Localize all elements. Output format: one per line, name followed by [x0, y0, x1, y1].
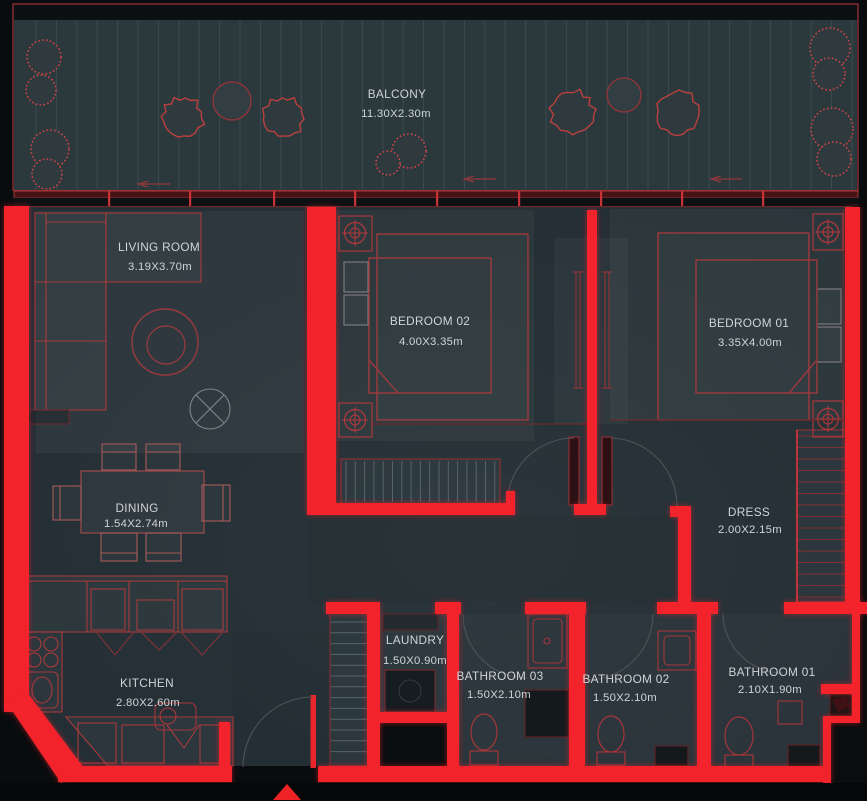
svg-text:3.19X3.70m: 3.19X3.70m — [128, 261, 192, 273]
svg-text:1.50X2.10m: 1.50X2.10m — [593, 692, 657, 704]
svg-text:11.30X2.30m: 11.30X2.30m — [361, 108, 431, 120]
svg-text:1.50X2.10m: 1.50X2.10m — [467, 689, 531, 701]
svg-text:2.80X2.60m: 2.80X2.60m — [116, 697, 180, 709]
svg-text:BEDROOM 02: BEDROOM 02 — [390, 314, 470, 328]
svg-text:DINING: DINING — [115, 501, 158, 515]
svg-text:2.10X1.90m: 2.10X1.90m — [738, 684, 802, 696]
svg-text:KITCHEN: KITCHEN — [120, 676, 174, 690]
svg-text:1.54X2.74m: 1.54X2.74m — [104, 518, 168, 530]
svg-text:1.50X0.90m: 1.50X0.90m — [383, 655, 447, 667]
svg-text:3.35X4.00m: 3.35X4.00m — [718, 337, 782, 349]
svg-text:LIVING ROOM: LIVING ROOM — [118, 240, 200, 254]
svg-text:2.00X2.15m: 2.00X2.15m — [718, 524, 782, 536]
svg-text:BALCONY: BALCONY — [368, 87, 426, 101]
svg-text:DRESS: DRESS — [728, 505, 770, 519]
svg-text:BATHROOM 02: BATHROOM 02 — [583, 672, 670, 686]
svg-text:BATHROOM 03: BATHROOM 03 — [457, 669, 544, 683]
svg-text:BATHROOM 01: BATHROOM 01 — [729, 665, 816, 679]
svg-text:4.00X3.35m: 4.00X3.35m — [399, 336, 463, 348]
svg-text:LAUNDRY: LAUNDRY — [386, 633, 444, 647]
svg-text:BEDROOM 01: BEDROOM 01 — [709, 316, 789, 330]
